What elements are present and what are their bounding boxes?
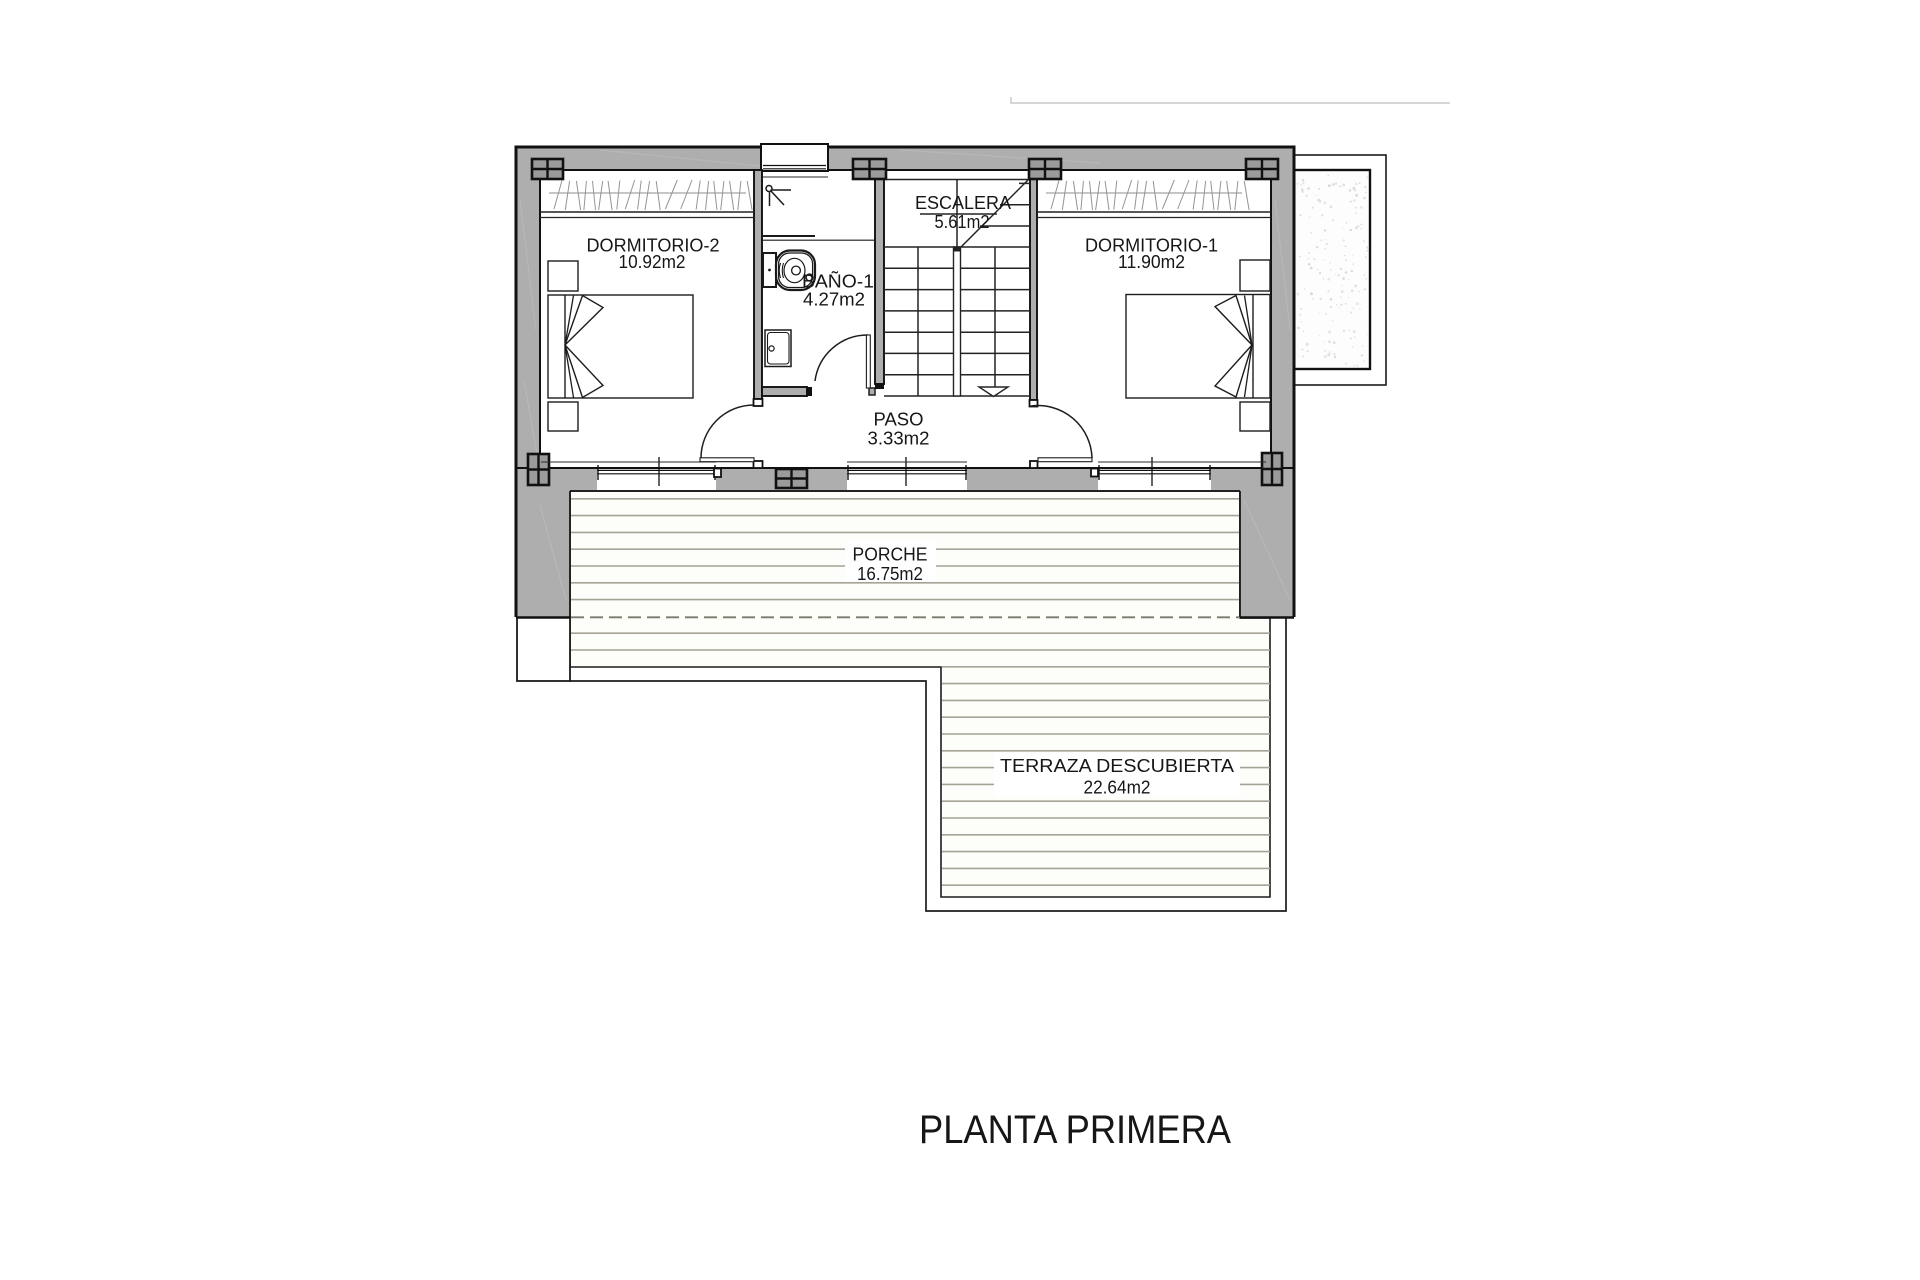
svg-text:11.90m2: 11.90m2 (1118, 252, 1185, 272)
svg-text:TERRAZA DESCUBIERTA: TERRAZA DESCUBIERTA (1000, 756, 1234, 776)
svg-text:3.33m2: 3.33m2 (868, 429, 930, 449)
svg-text:PLANTA PRIMERA: PLANTA PRIMERA (919, 1108, 1231, 1152)
svg-text:5.61m2: 5.61m2 (935, 212, 990, 232)
svg-text:16.75m2: 16.75m2 (857, 564, 923, 584)
svg-text:BAÑO-1: BAÑO-1 (802, 271, 874, 292)
svg-text:PORCHE: PORCHE (853, 545, 928, 565)
svg-text:PASO: PASO (874, 410, 924, 430)
svg-text:4.27m2: 4.27m2 (803, 290, 865, 310)
svg-text:10.92m2: 10.92m2 (619, 252, 686, 272)
svg-text:22.64m2: 22.64m2 (1084, 778, 1151, 798)
svg-text:ESCALERA: ESCALERA (915, 193, 1011, 213)
